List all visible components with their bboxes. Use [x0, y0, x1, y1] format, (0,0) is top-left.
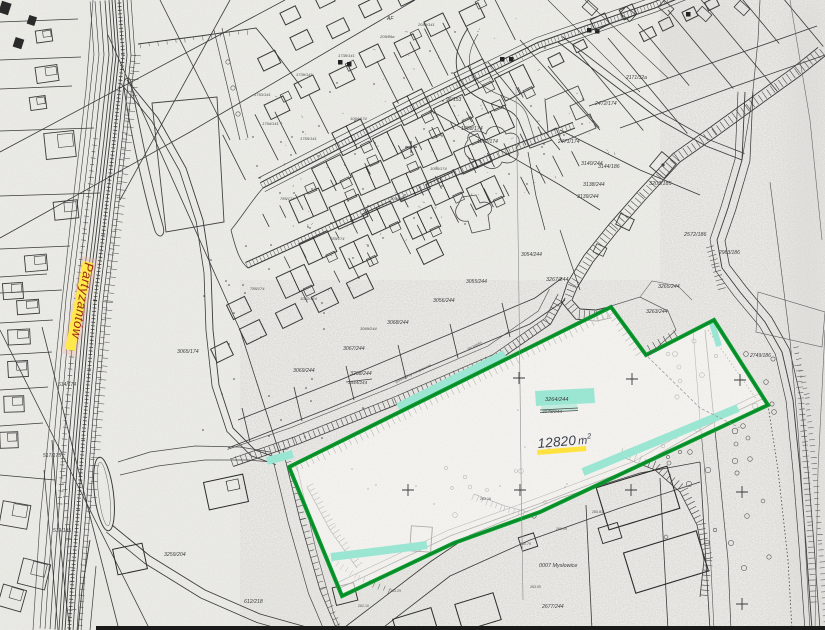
- svg-text:263.29: 263.29: [390, 589, 401, 593]
- svg-text:3267/244: 3267/244: [546, 277, 568, 283]
- svg-text:263.16: 263.16: [480, 497, 491, 501]
- svg-text:1072/174: 1072/174: [477, 139, 498, 145]
- svg-text:2099/141: 2099/141: [417, 22, 435, 27]
- svg-text:AF: AF: [386, 16, 394, 22]
- svg-text:2171/32a: 2171/32a: [625, 75, 647, 81]
- svg-text:2983/186: 2983/186: [718, 250, 740, 256]
- svg-text:3067/244: 3067/244: [343, 346, 365, 352]
- svg-text:3054/244: 3054/244: [521, 252, 542, 258]
- svg-text:0007 Mysłowice: 0007 Mysłowice: [539, 563, 577, 569]
- svg-text:3069/244: 3069/244: [360, 326, 377, 331]
- svg-text:1738/141: 1738/141: [338, 53, 355, 58]
- svg-text:1754/141: 1754/141: [262, 121, 279, 126]
- svg-text:3055/244: 3055/244: [466, 279, 487, 285]
- svg-text:2677/244: 2677/244: [541, 604, 564, 610]
- svg-text:2472/174: 2472/174: [594, 101, 617, 107]
- svg-text:1095/174: 1095/174: [430, 166, 447, 171]
- svg-text:3259/204: 3259/204: [164, 552, 186, 558]
- svg-text:209/89a: 209/89a: [379, 34, 395, 39]
- svg-text:3263/244: 3263/244: [646, 309, 668, 315]
- svg-text:260.79: 260.79: [520, 542, 531, 546]
- svg-text:3144/186: 3144/186: [598, 164, 620, 170]
- svg-text:3264/244: 3264/244: [545, 397, 568, 403]
- svg-text:2471/174: 2471/174: [557, 139, 580, 145]
- svg-text:3065/174: 3065/174: [177, 349, 199, 355]
- svg-text:3069/244: 3069/244: [293, 368, 315, 374]
- svg-text:262.10: 262.10: [358, 604, 369, 608]
- svg-text:2749/186: 2749/186: [749, 353, 771, 359]
- svg-text:789/174: 789/174: [330, 236, 345, 241]
- svg-text:785/174: 785/174: [280, 196, 295, 201]
- svg-text:263.90: 263.90: [530, 585, 541, 589]
- svg-text:3139/244: 3139/244: [577, 194, 599, 200]
- svg-text:3203/185: 3203/185: [649, 181, 672, 187]
- svg-text:265.83: 265.83: [592, 510, 603, 514]
- svg-text:1094/174: 1094/174: [390, 196, 407, 201]
- svg-text:3056/244: 3056/244: [433, 298, 455, 304]
- svg-text:96/153: 96/153: [446, 97, 462, 103]
- svg-text:519/185: 519/185: [53, 528, 71, 534]
- svg-text:2572/186: 2572/186: [683, 232, 706, 238]
- svg-text:786/174: 786/174: [250, 286, 265, 291]
- svg-text:1753/141: 1753/141: [254, 92, 271, 97]
- svg-text:514/174: 514/174: [58, 382, 76, 388]
- svg-text:3265/244: 3265/244: [658, 284, 680, 290]
- svg-text:3268/244: 3268/244: [350, 371, 372, 377]
- svg-text:3068/244: 3068/244: [387, 320, 409, 326]
- svg-text:1082/174: 1082/174: [300, 296, 317, 301]
- svg-text:1088/174: 1088/174: [461, 126, 483, 132]
- svg-text:612/218: 612/218: [244, 599, 263, 605]
- svg-text:517/175: 517/175: [43, 453, 61, 459]
- svg-text:1755/141: 1755/141: [300, 136, 317, 141]
- svg-text:260.09: 260.09: [556, 527, 567, 531]
- svg-text:1739/141: 1739/141: [296, 72, 313, 77]
- svg-text:1094/174: 1094/174: [350, 116, 367, 121]
- svg-text:3138/244: 3138/244: [583, 182, 605, 188]
